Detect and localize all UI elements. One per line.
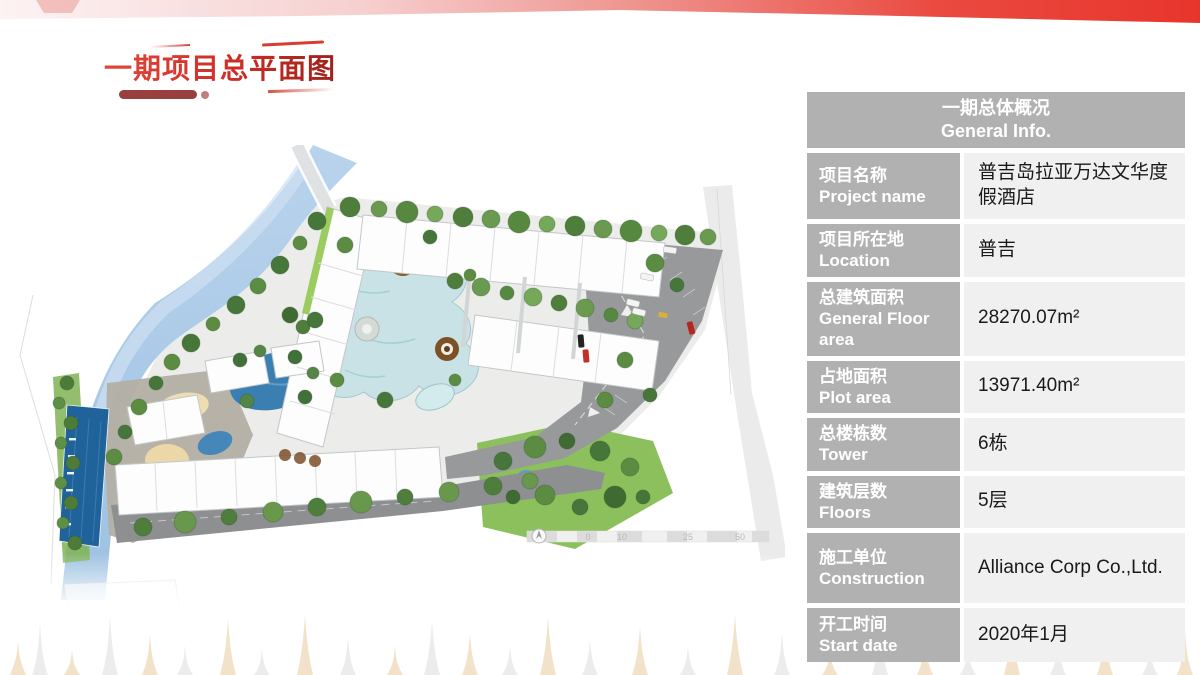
row-value: 6栋 [964, 418, 1185, 471]
row-label: 开工时间 Start date [807, 608, 960, 662]
table-header: 一期总体概况 General Info. [807, 92, 1185, 148]
table-row: 开工时间 Start date 2020年1月 [807, 608, 1185, 662]
row-value: 13971.40m² [964, 361, 1185, 414]
row-value: Alliance Corp Co.,Ltd. [964, 533, 1185, 603]
row-label: 施工单位 Construction [807, 533, 960, 603]
general-info-table: 一期总体概况 General Info. 项目名称 Project name 普… [807, 92, 1185, 662]
public-road [703, 185, 785, 561]
site-boundary-line [20, 295, 55, 585]
scale-label-10: 10 [617, 532, 627, 542]
table-row: 项目名称 Project name 普吉岛拉亚万达文华度假酒店 [807, 153, 1185, 219]
table-header-zh: 一期总体概况 [942, 97, 1050, 120]
title-underline-dot [201, 91, 209, 99]
row-label: 总建筑面积 General Floor area [807, 282, 960, 356]
title-underline-bar [119, 90, 197, 99]
row-label: 总楼栋数 Tower [807, 418, 960, 471]
table-header-en: General Info. [941, 120, 1051, 143]
scale-label-50: 50 [735, 532, 745, 542]
table-row: 项目所在地 Location 普吉 [807, 224, 1185, 277]
page-title: 一期项目总平面图 [104, 47, 336, 87]
row-value: 2020年1月 [964, 608, 1185, 662]
scale-label-25: 25 [683, 532, 693, 542]
row-value: 普吉 [964, 224, 1185, 277]
table-row: 总楼栋数 Tower 6栋 [807, 418, 1185, 471]
row-label: 建筑层数 Floors [807, 476, 960, 529]
table-row: 施工单位 Construction Alliance Corp Co.,Ltd. [807, 533, 1185, 603]
row-label: 项目名称 Project name [807, 153, 960, 219]
table-row: 总建筑面积 General Floor area 28270.07m² [807, 282, 1185, 356]
scale-label-0: 0 [585, 532, 590, 542]
table-row: 占地面积 Plot area 13971.40m² [807, 361, 1185, 414]
row-value: 普吉岛拉亚万达文华度假酒店 [964, 153, 1185, 219]
row-value: 28270.07m² [964, 282, 1185, 356]
site-plan-illustration: 0 10 25 50 [15, 145, 785, 610]
row-value: 5层 [964, 476, 1185, 529]
top-red-ribbon [0, 0, 1200, 42]
scale-bar: 0 10 25 50 [527, 529, 769, 543]
row-label: 项目所在地 Location [807, 224, 960, 277]
row-label: 占地面积 Plot area [807, 361, 960, 414]
table-row: 建筑层数 Floors 5层 [807, 476, 1185, 529]
title-accent-line-bottom [268, 88, 334, 93]
